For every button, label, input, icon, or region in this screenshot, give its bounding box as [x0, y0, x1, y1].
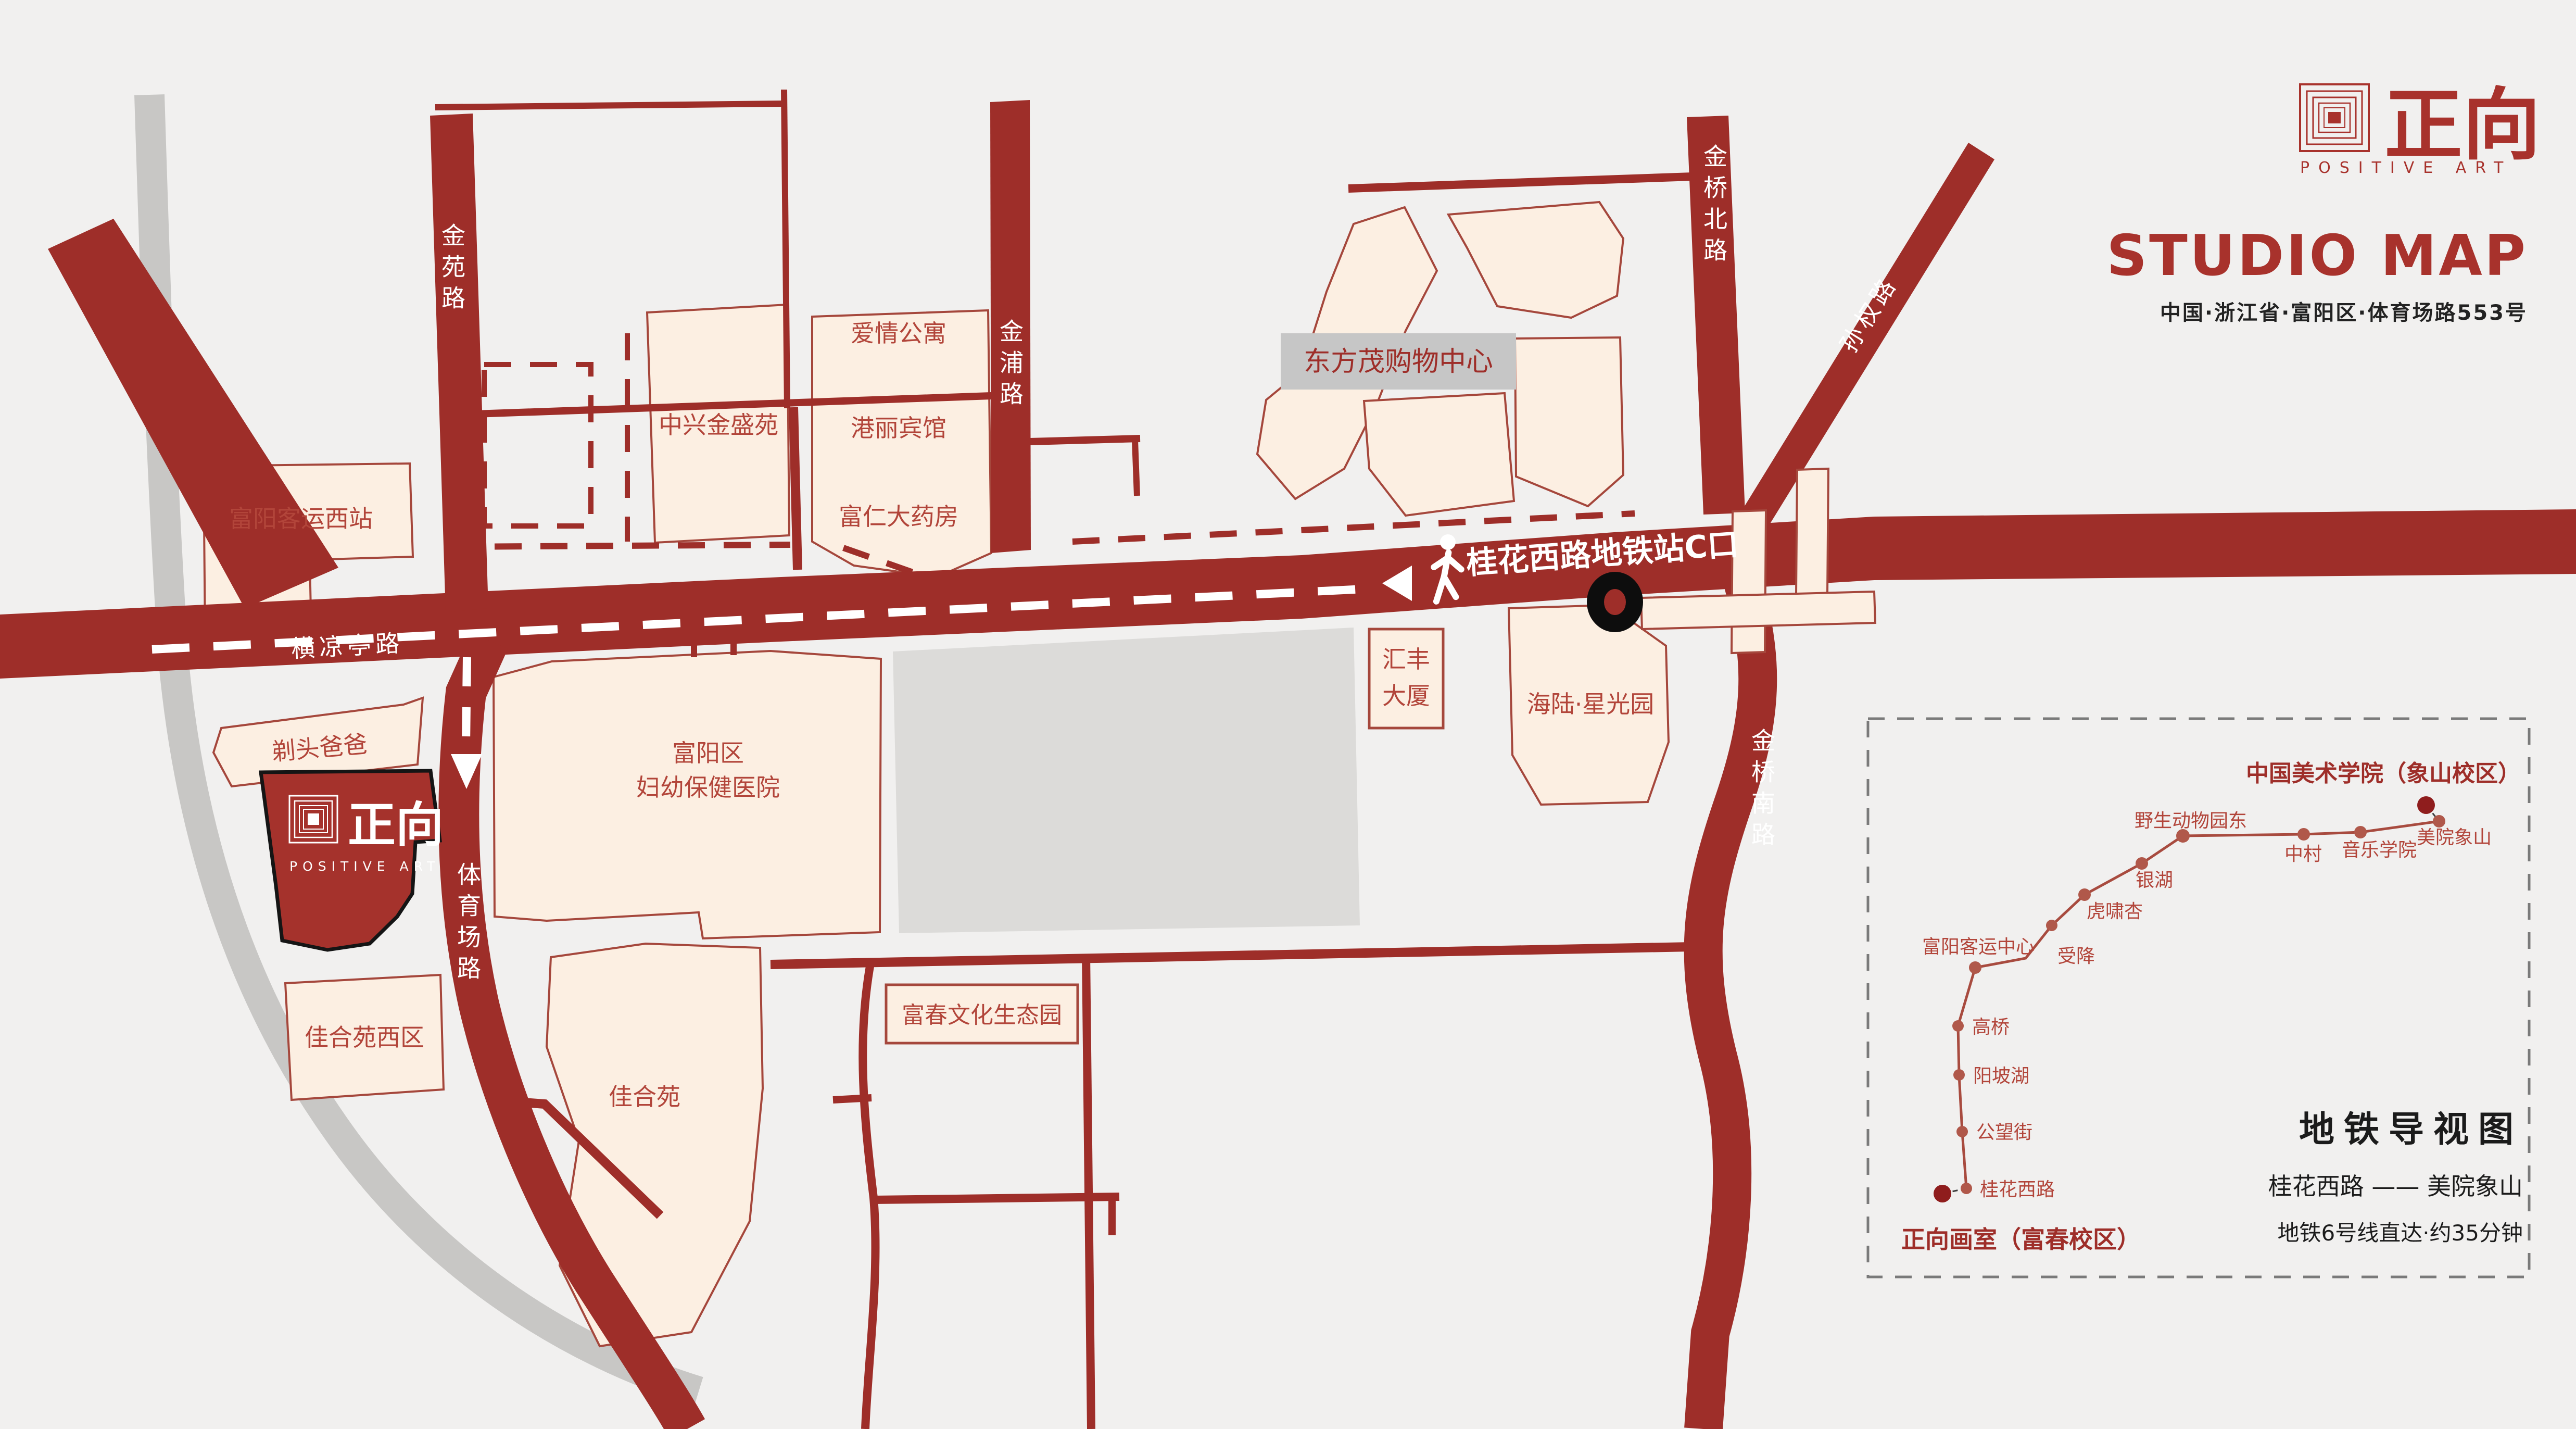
label-apartment: 爱情公寓 [851, 319, 946, 347]
metro-station-label: 美院象山 [2417, 827, 2492, 848]
label-ecology-park: 富春文化生态园 [902, 1002, 1062, 1029]
brand-block: 正向 POSITIVE ART STUDIO MAP 中国·浙江省·富阳区·体育… [2106, 80, 2541, 325]
label-huifeng-2: 大厦 [1382, 682, 1430, 710]
building-mall-north [1448, 202, 1623, 318]
road-thin-vertical [784, 90, 787, 408]
road-jinqiao-south [1703, 568, 1758, 1429]
label-road-jinqiao-north: 金桥北路 [1700, 144, 1728, 269]
metro-station-label: 虎啸杏 [2087, 901, 2143, 922]
metro-end-endpoint-dot [2417, 796, 2435, 814]
dashed-line-west [449, 545, 790, 547]
road-top-east [1348, 176, 1708, 189]
metro-exit-marker [1587, 572, 1643, 632]
overpass-bar-horizontal [1641, 592, 1875, 629]
metro-panel-title: 地铁导视图 [2299, 1109, 2523, 1150]
label-road-jinqiao-south: 金桥南路 [1748, 728, 1776, 853]
road-thin-top [435, 104, 785, 107]
map-canvas: 正向 POSITIVE ART 富阳客运西站 中兴金盛苑 爱情公寓 港丽宾馆 富… [0, 0, 2576, 1429]
metro-note: 地铁6号线直达·约35分钟 [2277, 1220, 2523, 1246]
label-huifeng-1: 汇丰 [1382, 645, 1430, 673]
label-jiaheyuan: 佳合苑 [609, 1083, 680, 1111]
label-road-jinpu: 金浦路 [996, 319, 1024, 412]
metro-start-endpoint-dot [1934, 1185, 1951, 1202]
metro-station-label: 野生动物园东 [2135, 810, 2247, 832]
building-mall-south [1364, 393, 1514, 516]
metro-start-label: 正向画室（富春校区） [1901, 1225, 2141, 1253]
road-spur-tick [1135, 440, 1137, 496]
metro-station-label: 富阳客运中心 [1922, 936, 2035, 958]
dashed-building-outline [484, 365, 591, 526]
label-zhongxing: 中兴金盛苑 [659, 411, 778, 439]
road-v1-stub [833, 1098, 872, 1100]
label-road-jinyuan: 金苑路 [438, 223, 466, 317]
gray-block [893, 628, 1360, 933]
brand-logo-cn: 正向 [2384, 80, 2541, 171]
studio-logo-en: POSITIVE ART [289, 859, 440, 874]
overpass-bar-vertical-2 [1796, 469, 1828, 595]
huifeng-box [1369, 629, 1443, 728]
metro-station-label: 音乐学院 [2342, 839, 2417, 861]
road-south-v2 [1086, 954, 1091, 1429]
studio-map-poster: 正向 POSITIVE ART 富阳客运西站 中兴金盛苑 爱情公寓 港丽宾馆 富… [0, 0, 2576, 1429]
label-hotel: 港丽宾馆 [851, 414, 946, 442]
label-hospital-2: 妇幼保健医院 [636, 773, 780, 801]
page-title: STUDIO MAP [2106, 223, 2528, 289]
studio-logo-cn: 正向 [348, 797, 444, 853]
metro-station-label: 阳坡湖 [1973, 1066, 2029, 1087]
label-jiaheyuan-west: 佳合苑西区 [305, 1023, 424, 1051]
metro-station-label: 高桥 [1972, 1017, 2010, 1038]
road-south-h2 [873, 1197, 1119, 1200]
road-block-divider [793, 407, 798, 570]
brand-address: 中国·浙江省·富阳区·体育场路553号 [2160, 301, 2528, 325]
road-spur-east [1030, 438, 1140, 442]
metro-guide-panel: 桂花西路 公望街 阳坡湖 高桥 富阳客运中心 受降 虎啸杏 银湖 野生动物园东 … [1868, 719, 2529, 1277]
brand-logo-en: POSITIVE ART [2300, 159, 2512, 177]
label-dongfangmao: 东方茂购物中心 [1304, 346, 1493, 378]
label-hailu: 海陆·星光园 [1527, 690, 1655, 718]
metro-station-label: 银湖 [2136, 870, 2173, 891]
label-west-bus-station: 富阳客运西站 [229, 505, 373, 533]
metro-station-label: 桂花西路 [1980, 1179, 2055, 1200]
road-jinyuan [430, 114, 488, 612]
metro-station-label: 受降 [2057, 946, 2095, 967]
building-mall-east [1515, 337, 1623, 506]
road-south-h1 [771, 947, 1692, 964]
building-apartment-block [812, 310, 991, 577]
label-pharmacy: 富仁大药房 [839, 503, 958, 531]
studio-building: 正向 POSITIVE ART [261, 771, 444, 950]
label-road-tiyuchang: 体育场路 [453, 862, 482, 987]
label-hospital-1: 富阳区 [672, 739, 744, 767]
metro-station-label: 中村 [2284, 844, 2322, 865]
positive-art-logo-icon [2300, 84, 2369, 151]
label-road-hengliangting: 横凉亭路 [291, 629, 405, 663]
metro-station-label: 公望街 [1976, 1122, 2032, 1143]
metro-end-label: 中国美术学院（象山校区） [2246, 760, 2521, 787]
metro-route: 桂花西路 —— 美院象山 [2268, 1172, 2523, 1200]
road-fork-branch [48, 219, 338, 608]
